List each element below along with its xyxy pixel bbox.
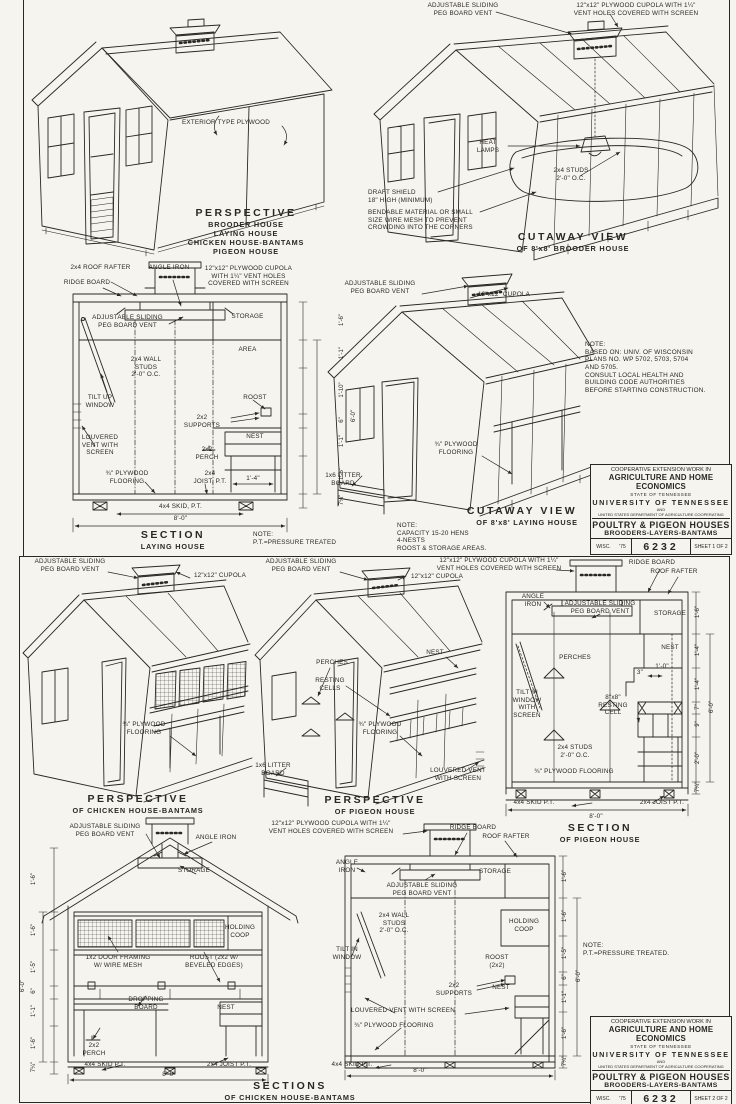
label-scb-supports: 2x2 SUPPORTS: [431, 982, 477, 997]
label-sca-perch: 2x2 PERCH: [78, 1042, 110, 1057]
label-sl-cupola: 12"x12" PLYWOOD CUPOLA WITH 1¼" VENT HOL…: [201, 265, 296, 288]
dim-scb-0: 1'-6": [562, 859, 568, 893]
title-perspective: PERSPECTIVE: [176, 207, 316, 219]
tb1-ag: AGRICULTURE AND HOME ECONOMICS: [592, 473, 730, 491]
title-perspective-pigeon: PERSPECTIVE: [305, 794, 445, 806]
label-sl-width: 8'-0": [158, 515, 203, 523]
label-scb-rafter: ROOF RAFTER: [477, 833, 535, 841]
label-scb-skid: 4x4 SKID P.T.: [323, 1061, 381, 1069]
panel-section-pigeon: 12"x12" PLYWOOD CUPOLA WITH 1¼" VENT HOL…: [492, 556, 736, 856]
dim-scb-1: 1'-6": [562, 899, 568, 933]
label-scb-roost: ROOST (2x2): [475, 954, 519, 969]
label-sl-tilt-window: TILT UP WINDOW: [79, 394, 121, 409]
label-scb-vent: ADJUSTABLE SLIDING PEG BOARD VENT: [378, 882, 466, 897]
label-scb-ridge: RIDGE BOARD: [445, 824, 501, 832]
label-scb-tilt: TILT IN WINDOW: [327, 946, 367, 961]
label-cb-vent: ADJUSTABLE SLIDING PEG BOARD VENT: [418, 2, 508, 17]
label-pp-nest: NEST: [415, 649, 455, 657]
tb2-year: '75: [619, 1096, 626, 1102]
label-exterior-plywood: EXTERIOR TYPE PLYWOOD: [166, 119, 286, 127]
subtitle-section-laying: LAYING HOUSE: [123, 542, 223, 551]
label-sl-ridge: RIDGE BOARD: [61, 279, 113, 287]
note-wisconsin: NOTE: BASED ON: UNIV. OF WISCONSIN PLANS…: [585, 341, 727, 395]
label-pp-cupola: 12"x12" CUPOLA: [406, 573, 468, 581]
label-sl-rafter: 2x4 ROOF RAFTER: [63, 264, 138, 272]
label-cl-cupola: 12"x12" CUPOLA: [472, 291, 536, 299]
label-spg-d3: 3": [632, 669, 648, 677]
label-sl-supports: 2x2 SUPPORTS: [179, 414, 225, 429]
footer-sections-sub: OF CHICKEN HOUSE-BANTAMS: [150, 1093, 430, 1102]
label-pp-perches: PERCHES: [308, 659, 356, 667]
label-sl-angle-iron: ANGLE IRON: [145, 264, 193, 272]
tb1-number: 6232: [632, 539, 691, 554]
label-cb-draft-shield: DRAFT SHIELD 18" HIGH (MINIMUM): [368, 189, 446, 204]
label-scb-width: 8'-0": [399, 1067, 441, 1075]
label-sl-nest-width: 1'-4": [235, 475, 271, 483]
label-spg-joist: 2x4 JOIST P.T.: [632, 799, 692, 807]
label-scb-coop: HOLDING COOP: [499, 918, 549, 933]
dim-scb-6: 7¼": [562, 1044, 568, 1078]
label-sl-louvered: LOUVERED VENT WITH SCREEN: [77, 434, 123, 457]
label-sca-coop: HOLDING COOP: [216, 924, 264, 939]
tb2-ag: AGRICULTURE AND HOME ECONOMICS: [592, 1025, 730, 1043]
label-sca-nest: NEST: [208, 1004, 244, 1012]
dim-spg-4: 9": [695, 707, 701, 741]
label-spg-flooring: ¾" PLYWOOD FLOORING: [528, 768, 620, 776]
label-spg-ridge: RIDGE BOARD: [622, 559, 682, 567]
title-block-sheet1: COOPERATIVE EXTENSION WORK IN AGRICULTUR…: [590, 464, 732, 555]
label-cb-heat-lamps: HEAT LAMPS: [468, 139, 508, 154]
tb1-year: '75: [619, 544, 626, 550]
note-capacity: NOTE: CAPACITY 15-20 HENS 4-NESTS ROOST …: [397, 522, 527, 552]
title-block-sheet2: COOPERATIVE EXTENSION WORK IN AGRICULTUR…: [590, 1016, 732, 1104]
tb2-sheet: SHEET 2 OF 2: [691, 1091, 731, 1104]
label-sl-area: AREA: [225, 346, 270, 354]
footer-sections-title: SECTIONS: [150, 1080, 430, 1092]
panel-section-chicken-a: ADJUSTABLE SLIDING PEG BOARD VENT ANGLE …: [20, 818, 312, 1086]
tb1-sub: BROODERS-LAYERS-BANTAMS: [591, 530, 731, 537]
panel-section-chicken-b: 12"x12" PLYWOOD CUPOLA WITH 1¼" VENT HOL…: [305, 818, 585, 1086]
label-pp-litter: 1x6 LITTER BOARD: [252, 762, 294, 777]
dim-spg-0: 1'-6": [695, 595, 701, 629]
label-spg-cupola: 12"x12" PLYWOOD CUPOLA WITH 1¼" VENT HOL…: [430, 557, 568, 572]
label-pp-louvered: LOUVERED VENT WITH SCREEN: [426, 767, 490, 782]
tb2-agency: WISC.'75: [591, 1091, 632, 1104]
label-pp-cells: RESTING CELLS: [306, 677, 354, 692]
label-spg-d10: 1'-0": [648, 663, 676, 671]
label-sca-storage: STORAGE: [170, 867, 218, 875]
tb1-title: POULTRY & PIGEON HOUSES: [591, 520, 731, 530]
label-pp-flooring: ¾" PLYWOOD FLOORING: [352, 721, 408, 736]
label-cl-vent: ADJUSTABLE SLIDING PEG BOARD VENT: [336, 280, 424, 295]
label-spg-storage: STORAGE: [648, 610, 692, 618]
note-pt-sheet2: NOTE: P.T.=PRESSURE TREATED.: [583, 942, 693, 957]
label-spg-perches: PERCHES: [550, 654, 600, 662]
subtitle-perspective-pigeon: OF PIGEON HOUSE: [305, 807, 445, 816]
label-sl-storage: STORAGE: [220, 313, 275, 321]
panel-cutaway-brooder: ADJUSTABLE SLIDING PEG BOARD VENT 12"x12…: [368, 0, 734, 258]
panel-cutaway-laying: ADJUSTABLE SLIDING PEG BOARD VENT 12"x12…: [322, 260, 598, 556]
blueprint-page: EXTERIOR TYPE PLYWOOD PERSPECTIVE BROODE…: [0, 0, 736, 1104]
tb2-sub: BROODERS-LAYERS-BANTAMS: [591, 1082, 731, 1089]
label-spg-rafter: ROOF RAFTER: [644, 568, 704, 576]
label-spg-cell: 8"x8" RESTING CELL: [592, 694, 634, 717]
dim-spg-6: 7¼": [695, 770, 701, 804]
dim-sca-1: 1'-6": [31, 913, 37, 947]
panel-perspective-chicken: ADJUSTABLE SLIDING PEG BOARD VENT 12"x12…: [20, 556, 252, 818]
label-scb-flooring: ¾" PLYWOOD FLOORING: [347, 1022, 441, 1030]
label-sca-angle: ANGLE IRON: [190, 834, 242, 842]
dim-spg-height: 6'-0": [709, 690, 715, 724]
label-scb-nest: NEST: [483, 984, 519, 992]
label-spg-vent: ADJUSTABLE SLIDING PEG BOARD VENT: [556, 600, 644, 615]
label-sl-nest: NEST: [235, 433, 275, 441]
label-sl-vent: ADJUSTABLE SLIDING PEG BOARD VENT: [85, 314, 170, 329]
tb1-state: STATE OF TENNESSEE: [592, 492, 730, 497]
label-pc-cupola: 12"x12" CUPOLA: [188, 572, 252, 580]
dim-sca-0: 1'-6": [31, 862, 37, 896]
tb2-usda: UNITED STATES DEPARTMENT OF AGRICULTURE …: [592, 1064, 730, 1071]
title-perspective-chicken: PERSPECTIVE: [68, 793, 208, 805]
dim-spg-1: 1'-4": [695, 633, 701, 667]
label-spg-tilt: TILT IN WINDOW WITH SCREEN: [506, 689, 548, 719]
tb1-agency-name: WISC.: [596, 544, 610, 550]
label-scb-cupola: 12"x12" PLYWOOD CUPOLA WITH 1¼" VENT HOL…: [261, 820, 401, 835]
label-sl-skid: 4x4 SKID, P.T.: [133, 503, 228, 511]
label-sca-framing: 1x2 DOOR FRAMING W/ WIRE MESH: [76, 954, 160, 969]
dim-sca-4: 1'-1": [31, 994, 37, 1028]
tb1-sheet: SHEET 1 OF 2: [691, 539, 731, 554]
sheet1-left-border: [23, 0, 24, 556]
label-cl-flooring: ¾" PLYWOOD FLOORING: [428, 441, 484, 456]
panel-section-laying: 2x4 ROOF RAFTER ANGLE IRON 12"x12" PLYWO…: [55, 256, 355, 556]
label-sca-roost: ROOST (2x2 W/ BEVELED EDGES): [172, 954, 256, 969]
dim-scb-height: 6'-0": [576, 959, 582, 993]
tb2-univ: UNIVERSITY OF TENNESSEE: [592, 1050, 730, 1059]
tb2-state: STATE OF TENNESSEE: [592, 1044, 730, 1049]
title-cutaway-laying: CUTAWAY VIEW: [452, 505, 592, 517]
label-sl-perch: 2x2 PERCH: [187, 446, 227, 461]
panel-perspective-pigeon: ADJUSTABLE SLIDING PEG BOARD VENT 12"x12…: [250, 556, 498, 818]
tb1-agency: WISC.'75: [591, 539, 632, 554]
label-cb-cupola: 12"x12" PLYWOOD CUPOLA WITH 1¼" VENT HOL…: [566, 2, 706, 17]
label-sca-skid: 4x4 SKID P.T.: [76, 1061, 134, 1069]
label-cl-litter: 1x6 LITTER BOARD: [322, 472, 364, 487]
label-sl-studs: 2x4 WALL STUDS 2'-0" O.C.: [125, 356, 167, 379]
label-scb-storage: STORAGE: [471, 868, 519, 876]
label-cb-bendable: BENDABLE MATERIAL OR SMALL SIZE WIRE MES…: [368, 209, 480, 232]
tb2-number: 6232: [632, 1091, 691, 1104]
label-pc-vent: ADJUSTABLE SLIDING PEG BOARD VENT: [28, 558, 112, 573]
tb1-univ: UNIVERSITY OF TENNESSEE: [592, 498, 730, 507]
label-spg-nest: NEST: [650, 644, 690, 652]
label-sca-joist: 2x4 JOIST P.T.: [198, 1061, 260, 1069]
label-spg-skid: 4x4 SKID P.T.: [506, 799, 562, 807]
label-sl-flooring: ¾" PLYWOOD FLOORING: [97, 470, 157, 485]
dim-sca-height: 6'-0": [20, 969, 26, 1003]
tb1-usda: UNITED STATES DEPARTMENT OF AGRICULTURE …: [592, 512, 730, 519]
tb2-title: POULTRY & PIGEON HOUSES: [591, 1072, 731, 1082]
title-cutaway-brooder: CUTAWAY VIEW: [508, 231, 638, 243]
subtitle-cutaway-brooder: OF 8'x8' BROODER HOUSE: [503, 244, 643, 253]
label-pp-vent: ADJUSTABLE SLIDING PEG BOARD VENT: [258, 558, 344, 573]
label-spg-studs: 2x4 STUDS 2'-0" O.C.: [550, 744, 600, 759]
label-scb-studs: 2x4 WALL STUDS 2'-0" O.C.: [371, 912, 417, 935]
subtitle-perspective: BROODER HOUSE LAYING HOUSE CHICKEN HOUSE…: [166, 220, 326, 256]
label-pc-flooring: ¾" PLYWOOD FLOORING: [116, 721, 172, 736]
label-scb-louver: LOUVERED VENT WITH SCREEN: [343, 1007, 463, 1015]
tb2-agency-name: WISC.: [596, 1096, 610, 1102]
title-section-laying: SECTION: [123, 529, 223, 541]
label-sl-joist: 2x4 JOIST, P.T.: [187, 470, 233, 485]
label-sca-width: 8'-0": [148, 1071, 190, 1079]
section-chicken-a-drawing: [20, 818, 312, 1086]
label-sl-roost: ROOST: [237, 394, 273, 402]
label-scb-angle: ANGLE IRON: [327, 859, 367, 874]
label-cb-studs: 2x4 STUDS 2'-0" O.C.: [546, 167, 596, 182]
subtitle-perspective-chicken: OF CHICKEN HOUSE-BANTAMS: [58, 806, 218, 815]
dim-scb-4: 1'-1": [562, 980, 568, 1014]
label-sca-vent: ADJUSTABLE SLIDING PEG BOARD VENT: [62, 823, 148, 838]
dim-sca-6: 7¼": [31, 1050, 37, 1084]
perspective-chicken-drawing: [20, 556, 252, 818]
panel-perspective-brooder: EXTERIOR TYPE PLYWOOD PERSPECTIVE BROODE…: [26, 4, 370, 258]
label-sca-dropping: DROPPING BOARD: [122, 996, 170, 1011]
label-spg-angle: ANGLE IRON: [514, 593, 552, 608]
